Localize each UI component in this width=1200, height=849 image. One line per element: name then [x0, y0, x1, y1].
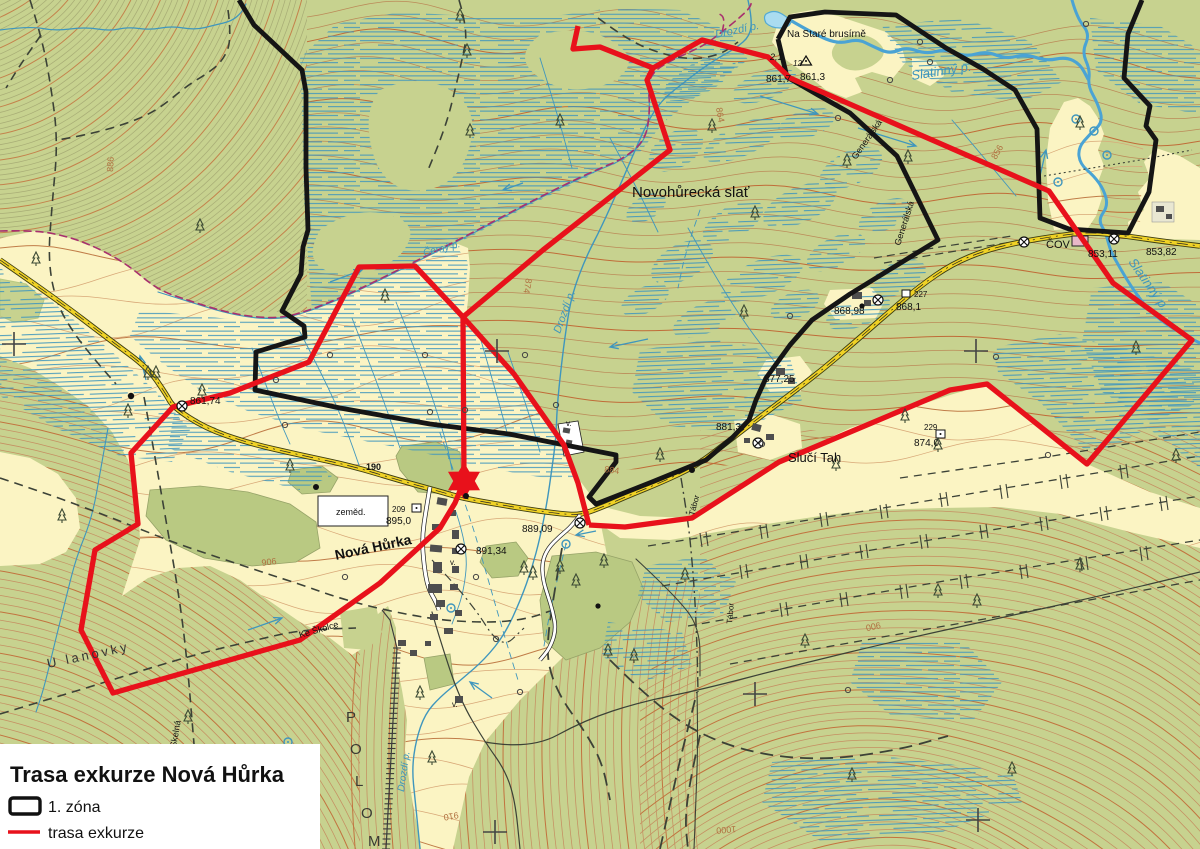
svg-text:Trasa exkurze Nová Hůrka: Trasa exkurze Nová Hůrka — [10, 762, 285, 787]
svg-text:891,34: 891,34 — [476, 546, 507, 557]
svg-text:O: O — [350, 741, 362, 758]
svg-text:v.: v. — [452, 700, 458, 709]
svg-text:853,11: 853,11 — [1088, 249, 1118, 260]
svg-text:886: 886 — [105, 157, 116, 173]
svg-text:906: 906 — [261, 556, 277, 568]
svg-text:L: L — [355, 773, 363, 790]
svg-text:Novohůrecká slať: Novohůrecká slať — [632, 184, 750, 201]
svg-text:881,3: 881,3 — [716, 422, 741, 433]
svg-text:v.: v. — [566, 419, 572, 428]
svg-text:190: 190 — [366, 462, 381, 472]
svg-text:861,7: 861,7 — [766, 74, 791, 85]
svg-text:v.: v. — [450, 558, 456, 567]
svg-text:874,0: 874,0 — [914, 438, 939, 449]
svg-text:1000: 1000 — [716, 824, 737, 836]
svg-text:889,09: 889,09 — [522, 524, 553, 535]
svg-text:12: 12 — [793, 59, 802, 68]
svg-text:895,0: 895,0 — [386, 516, 411, 527]
svg-text:trasa exkurze: trasa exkurze — [48, 825, 144, 842]
svg-text:M: M — [368, 833, 381, 849]
svg-text:zeměd.: zeměd. — [336, 507, 366, 517]
svg-text:2,1: 2,1 — [769, 52, 783, 62]
svg-text:P: P — [346, 709, 356, 726]
svg-text:853,82: 853,82 — [1146, 247, 1177, 258]
svg-text:861,3: 861,3 — [800, 72, 825, 83]
svg-text:Tábor: Tábor — [725, 602, 736, 624]
svg-text:227: 227 — [914, 290, 928, 299]
svg-text:861,74: 861,74 — [190, 396, 221, 407]
svg-text:229: 229 — [924, 423, 938, 432]
svg-text:Na Staré brusírně: Na Staré brusírně — [787, 29, 866, 40]
svg-text:877,25: 877,25 — [764, 374, 795, 385]
svg-text:868,1: 868,1 — [896, 302, 921, 313]
svg-text:O: O — [361, 805, 373, 822]
svg-text:1. zóna: 1. zóna — [48, 799, 101, 816]
svg-text:884: 884 — [604, 464, 620, 476]
svg-text:Slučí Tah: Slučí Tah — [788, 450, 841, 465]
svg-text:209: 209 — [392, 505, 406, 514]
svg-text:868,98: 868,98 — [834, 306, 865, 317]
svg-text:ČOV: ČOV — [1046, 238, 1071, 251]
